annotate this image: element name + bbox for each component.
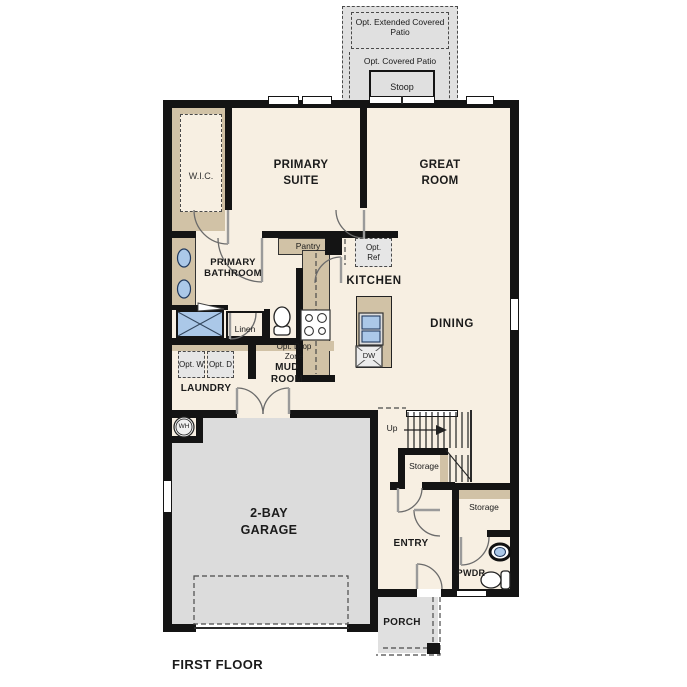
wall [262, 231, 398, 238]
wall [390, 482, 398, 490]
opt-covered-patio-label: Opt. Covered Patio [344, 56, 456, 66]
stair-rail-line [470, 410, 472, 482]
wall [398, 448, 448, 455]
opt-extended-patio-label: Opt. Extended Covered Patio [352, 17, 448, 37]
wall [225, 108, 232, 210]
dining-label: DINING [417, 318, 487, 332]
dishwasher-label: DW [360, 351, 378, 360]
window [456, 590, 487, 597]
primary-suite-label: PRIMARY SUITE [264, 158, 338, 189]
opt-dryer-box: Opt. D [207, 351, 234, 378]
plan-title: FIRST FLOOR [172, 657, 292, 673]
wall [510, 100, 519, 597]
wall [264, 309, 270, 338]
laundry-label: LAUNDRY [171, 383, 241, 395]
wall [172, 305, 228, 310]
wall [422, 482, 455, 490]
opt-ref-label: Opt. Ref [361, 243, 387, 262]
entry-storage-shelf [459, 490, 510, 499]
sliding-door-divider [401, 96, 403, 104]
window [510, 298, 519, 331]
wall [163, 436, 203, 443]
opt-ref-box: Opt. Ref [355, 238, 392, 267]
stair-landing [406, 410, 458, 417]
opt-washer-box: Opt. W [178, 351, 205, 378]
wall [360, 108, 367, 208]
storage-under-stairs-label: Storage [400, 461, 448, 471]
window [163, 480, 172, 513]
floor-plan: Opt. W Opt. D Opt. Ref [0, 0, 687, 687]
up-label: Up [382, 423, 402, 433]
opt-drop-zone-label: Opt. Drop Zone [268, 342, 320, 361]
wall [487, 530, 519, 537]
linen-label: Linen [227, 324, 263, 334]
primary-bathroom-label: PRIMARY BATHROOM [193, 257, 273, 280]
porch-label: PORCH [377, 617, 427, 629]
wall [290, 410, 378, 418]
wall [163, 624, 196, 632]
garage-label: 2-BAY GARAGE [227, 505, 311, 539]
wall [248, 341, 256, 379]
garage-door-line [194, 627, 349, 629]
entry-label: ENTRY [386, 538, 436, 550]
wall [163, 100, 172, 632]
window [466, 96, 494, 105]
window [302, 96, 332, 105]
wall [378, 589, 417, 597]
great-room-label: GREAT ROOM [412, 158, 468, 189]
shower [176, 310, 224, 338]
wic-floor [180, 114, 222, 212]
wic-label: W.I.C. [179, 171, 223, 182]
opt-dryer-label: Opt. D [209, 360, 232, 370]
wall [452, 483, 459, 597]
wall [172, 231, 196, 238]
wall [452, 483, 510, 490]
mud-room-label: MUD ROOM [264, 362, 310, 386]
pantry-label: Pantry [283, 241, 333, 251]
opt-washer-label: Opt. W [179, 360, 204, 370]
window [268, 96, 299, 105]
kitchen-label: KITCHEN [334, 275, 414, 289]
pwdr-label: PWDR [450, 568, 492, 579]
water-heater-label: WH [174, 423, 194, 431]
storage-entry-label: Storage [460, 502, 508, 512]
stoop-label: Stoop [372, 82, 432, 93]
wall [370, 410, 378, 632]
